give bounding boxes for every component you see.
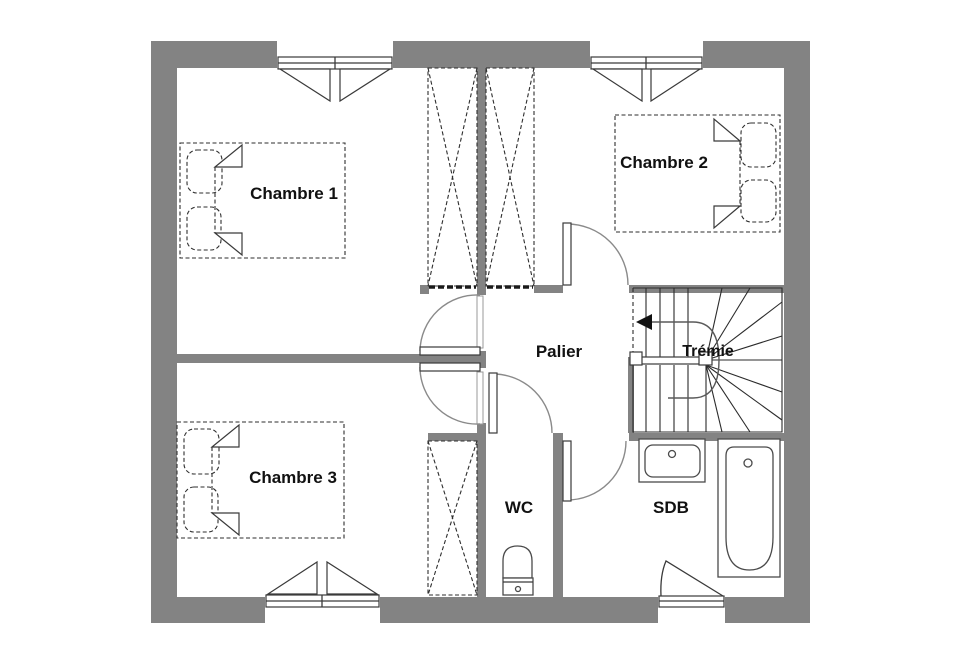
room-label-wc: WC xyxy=(505,498,533,517)
door-chambre-1 xyxy=(420,295,483,355)
floor-plan: Chambre 1 Chambre 2 Chambre 3 Palier Tré… xyxy=(0,0,960,665)
bed-chambre-2 xyxy=(615,115,780,232)
room-label-chambre-2: Chambre 2 xyxy=(620,153,708,172)
door-sdb xyxy=(563,441,626,501)
window-chambre-1 xyxy=(278,57,392,101)
toilet-fixture xyxy=(503,546,533,595)
bathtub-fixture xyxy=(718,439,780,577)
window-sdb xyxy=(659,561,724,607)
floor-plan-drawing: Chambre 1 Chambre 2 Chambre 3 Palier Tré… xyxy=(0,0,960,665)
door-wc xyxy=(489,373,552,433)
closet-palier xyxy=(486,68,534,287)
staircase xyxy=(630,288,782,432)
room-label-chambre-1: Chambre 1 xyxy=(250,184,338,203)
door-chambre-3 xyxy=(420,363,483,424)
stair-direction-arrow xyxy=(636,314,652,330)
closet-chambre-1 xyxy=(428,68,477,287)
window-chambre-3 xyxy=(266,562,379,607)
window-chambre-2 xyxy=(591,57,702,101)
room-label-sdb: SDB xyxy=(653,498,689,517)
room-label-chambre-3: Chambre 3 xyxy=(249,468,337,487)
room-label-tremie: Trémie xyxy=(682,343,734,360)
closet-chambre-3 xyxy=(428,441,477,595)
room-label-palier: Palier xyxy=(536,342,583,361)
sink-fixture xyxy=(639,439,705,482)
